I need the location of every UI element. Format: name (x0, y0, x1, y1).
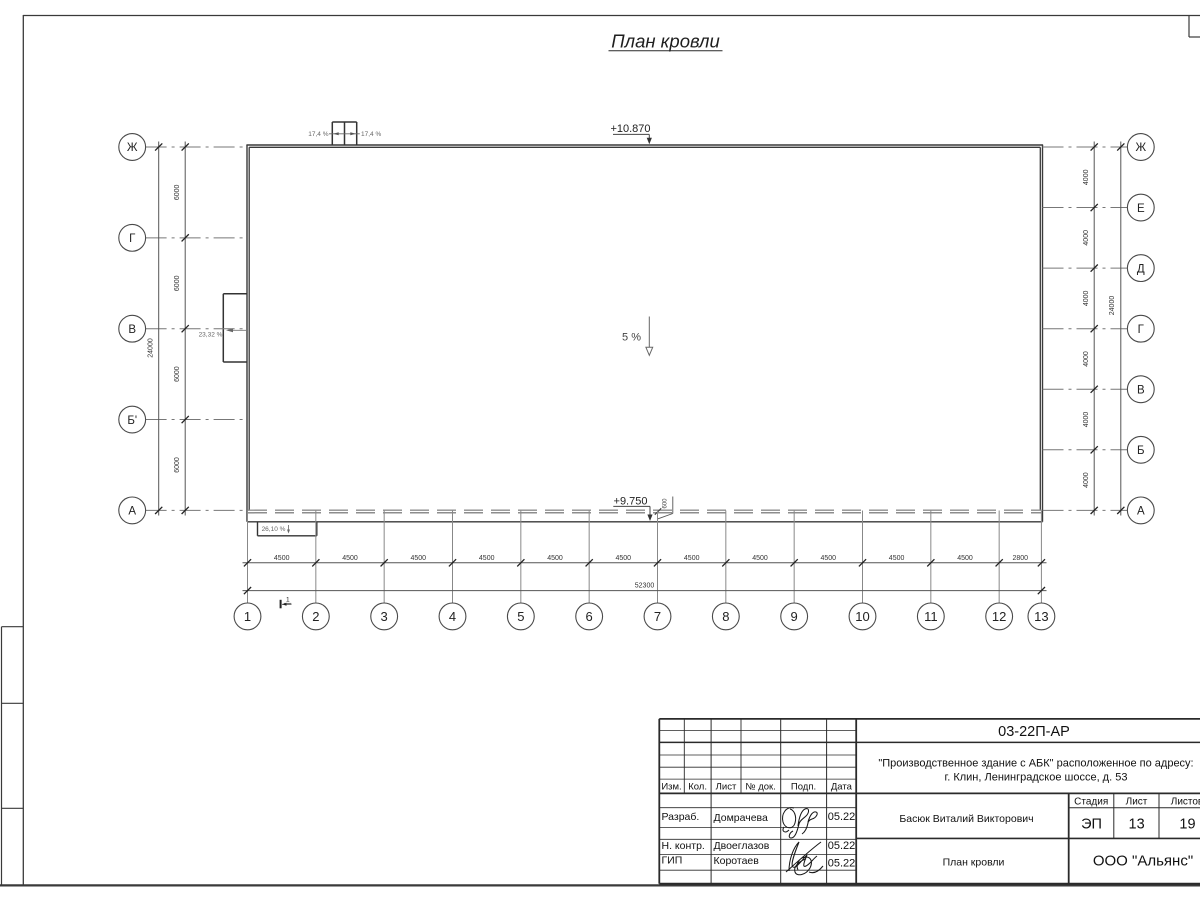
svg-text:1: 1 (286, 597, 290, 604)
svg-text:17,4 %: 17,4 % (361, 131, 381, 138)
svg-text:4500: 4500 (684, 555, 700, 562)
svg-text:4500: 4500 (479, 555, 495, 562)
svg-text:+9.750: +9.750 (614, 495, 648, 507)
svg-text:52300: 52300 (635, 583, 655, 590)
svg-text:Г: Г (129, 233, 136, 245)
svg-text:6000: 6000 (174, 275, 181, 291)
svg-text:4500: 4500 (821, 555, 837, 562)
svg-text:4000: 4000 (1083, 169, 1090, 185)
svg-text:План кровли: План кровли (943, 856, 1005, 868)
svg-text:5 %: 5 % (622, 331, 641, 343)
svg-text:В: В (128, 324, 136, 336)
svg-text:4000: 4000 (1083, 412, 1090, 428)
svg-text:4500: 4500 (411, 555, 427, 562)
svg-text:А: А (1137, 506, 1145, 518)
svg-text:ГИП: ГИП (662, 855, 683, 867)
svg-text:Б': Б' (127, 415, 137, 427)
svg-text:4000: 4000 (1083, 230, 1090, 246)
svg-text:А: А (128, 506, 136, 518)
svg-text:№ док.: № док. (745, 781, 775, 792)
svg-text:В: В (1137, 384, 1145, 396)
svg-text:2800: 2800 (1013, 555, 1029, 562)
svg-text:7: 7 (654, 609, 661, 624)
svg-text:8: 8 (722, 609, 729, 624)
svg-text:Ж: Ж (127, 142, 138, 154)
svg-text:Разраб.: Разраб. (662, 811, 700, 823)
svg-text:Домрачева: Домрачева (714, 812, 769, 824)
svg-text:17,4 %: 17,4 % (308, 131, 328, 138)
svg-text:Е: Е (1137, 203, 1145, 215)
svg-text:Подп.: Подп. (791, 781, 816, 792)
svg-text:Ж: Ж (1135, 142, 1146, 154)
svg-text:9: 9 (791, 609, 798, 624)
svg-text:4500: 4500 (752, 555, 768, 562)
svg-text:23,32 %: 23,32 % (199, 331, 223, 338)
svg-text:Стадия: Стадия (1074, 796, 1108, 807)
svg-text:1: 1 (244, 609, 251, 624)
svg-text:Лист: Лист (1126, 796, 1148, 807)
svg-text:12: 12 (992, 609, 1006, 624)
svg-text:ЭП: ЭП (1081, 817, 1102, 833)
svg-text:Басюк Виталий Викторович: Басюк Виталий Викторович (899, 813, 1033, 825)
svg-text:3: 3 (381, 609, 388, 624)
svg-text:4500: 4500 (889, 555, 905, 562)
svg-text:10: 10 (855, 609, 869, 624)
svg-text:4000: 4000 (1083, 351, 1090, 367)
svg-text:13: 13 (1034, 609, 1048, 624)
svg-text:Изм.: Изм. (661, 781, 681, 792)
svg-text:2: 2 (312, 609, 319, 624)
svg-text:05.22: 05.22 (828, 840, 856, 852)
svg-text:4000: 4000 (1083, 472, 1090, 488)
svg-text:11: 11 (924, 609, 938, 624)
svg-text:"Производственное здание с АБК: "Производственное здание с АБК" располож… (878, 758, 1193, 770)
svg-text:05.22: 05.22 (828, 811, 856, 823)
svg-text:4000: 4000 (1083, 291, 1090, 307)
svg-text:+10.870: +10.870 (610, 123, 650, 135)
svg-text:13: 13 (1129, 817, 1145, 833)
svg-text:4500: 4500 (616, 555, 632, 562)
svg-text:26,10 %: 26,10 % (262, 526, 286, 533)
svg-text:03-22П-АР: 03-22П-АР (998, 724, 1070, 740)
svg-text:Двоеглазов: Двоеглазов (714, 840, 770, 852)
svg-text:Г: Г (1138, 324, 1145, 336)
svg-text:6000: 6000 (174, 366, 181, 382)
svg-text:4500: 4500 (342, 555, 358, 562)
svg-text:Коротаев: Коротаев (714, 855, 760, 867)
svg-text:05.22: 05.22 (828, 857, 856, 869)
svg-text:Дата: Дата (831, 781, 853, 792)
svg-text:4: 4 (449, 609, 456, 624)
svg-text:600: 600 (662, 498, 668, 509)
svg-text:19: 19 (1179, 817, 1195, 833)
svg-text:План кровли: План кровли (611, 31, 720, 52)
svg-text:Д: Д (1137, 263, 1145, 275)
svg-text:Кол.: Кол. (688, 781, 707, 792)
svg-text:4500: 4500 (957, 555, 973, 562)
svg-text:6000: 6000 (174, 185, 181, 201)
svg-text:6000: 6000 (174, 457, 181, 473)
svg-text:Листов: Листов (1171, 796, 1200, 807)
svg-text:Лист: Лист (716, 781, 737, 792)
svg-text:4500: 4500 (274, 555, 290, 562)
svg-text:ООО "Альянс": ООО "Альянс" (1093, 852, 1193, 869)
svg-text:4500: 4500 (547, 555, 563, 562)
svg-text:5: 5 (517, 609, 524, 624)
svg-text:6: 6 (586, 609, 593, 624)
svg-text:24000: 24000 (1109, 296, 1116, 316)
svg-text:г. Клин, Ленинградское шоссе,: г. Клин, Ленинградское шоссе, д. 53 (945, 772, 1128, 784)
svg-text:24000: 24000 (147, 338, 154, 358)
svg-text:Н. контр.: Н. контр. (662, 840, 705, 852)
svg-text:Б: Б (1137, 445, 1145, 457)
